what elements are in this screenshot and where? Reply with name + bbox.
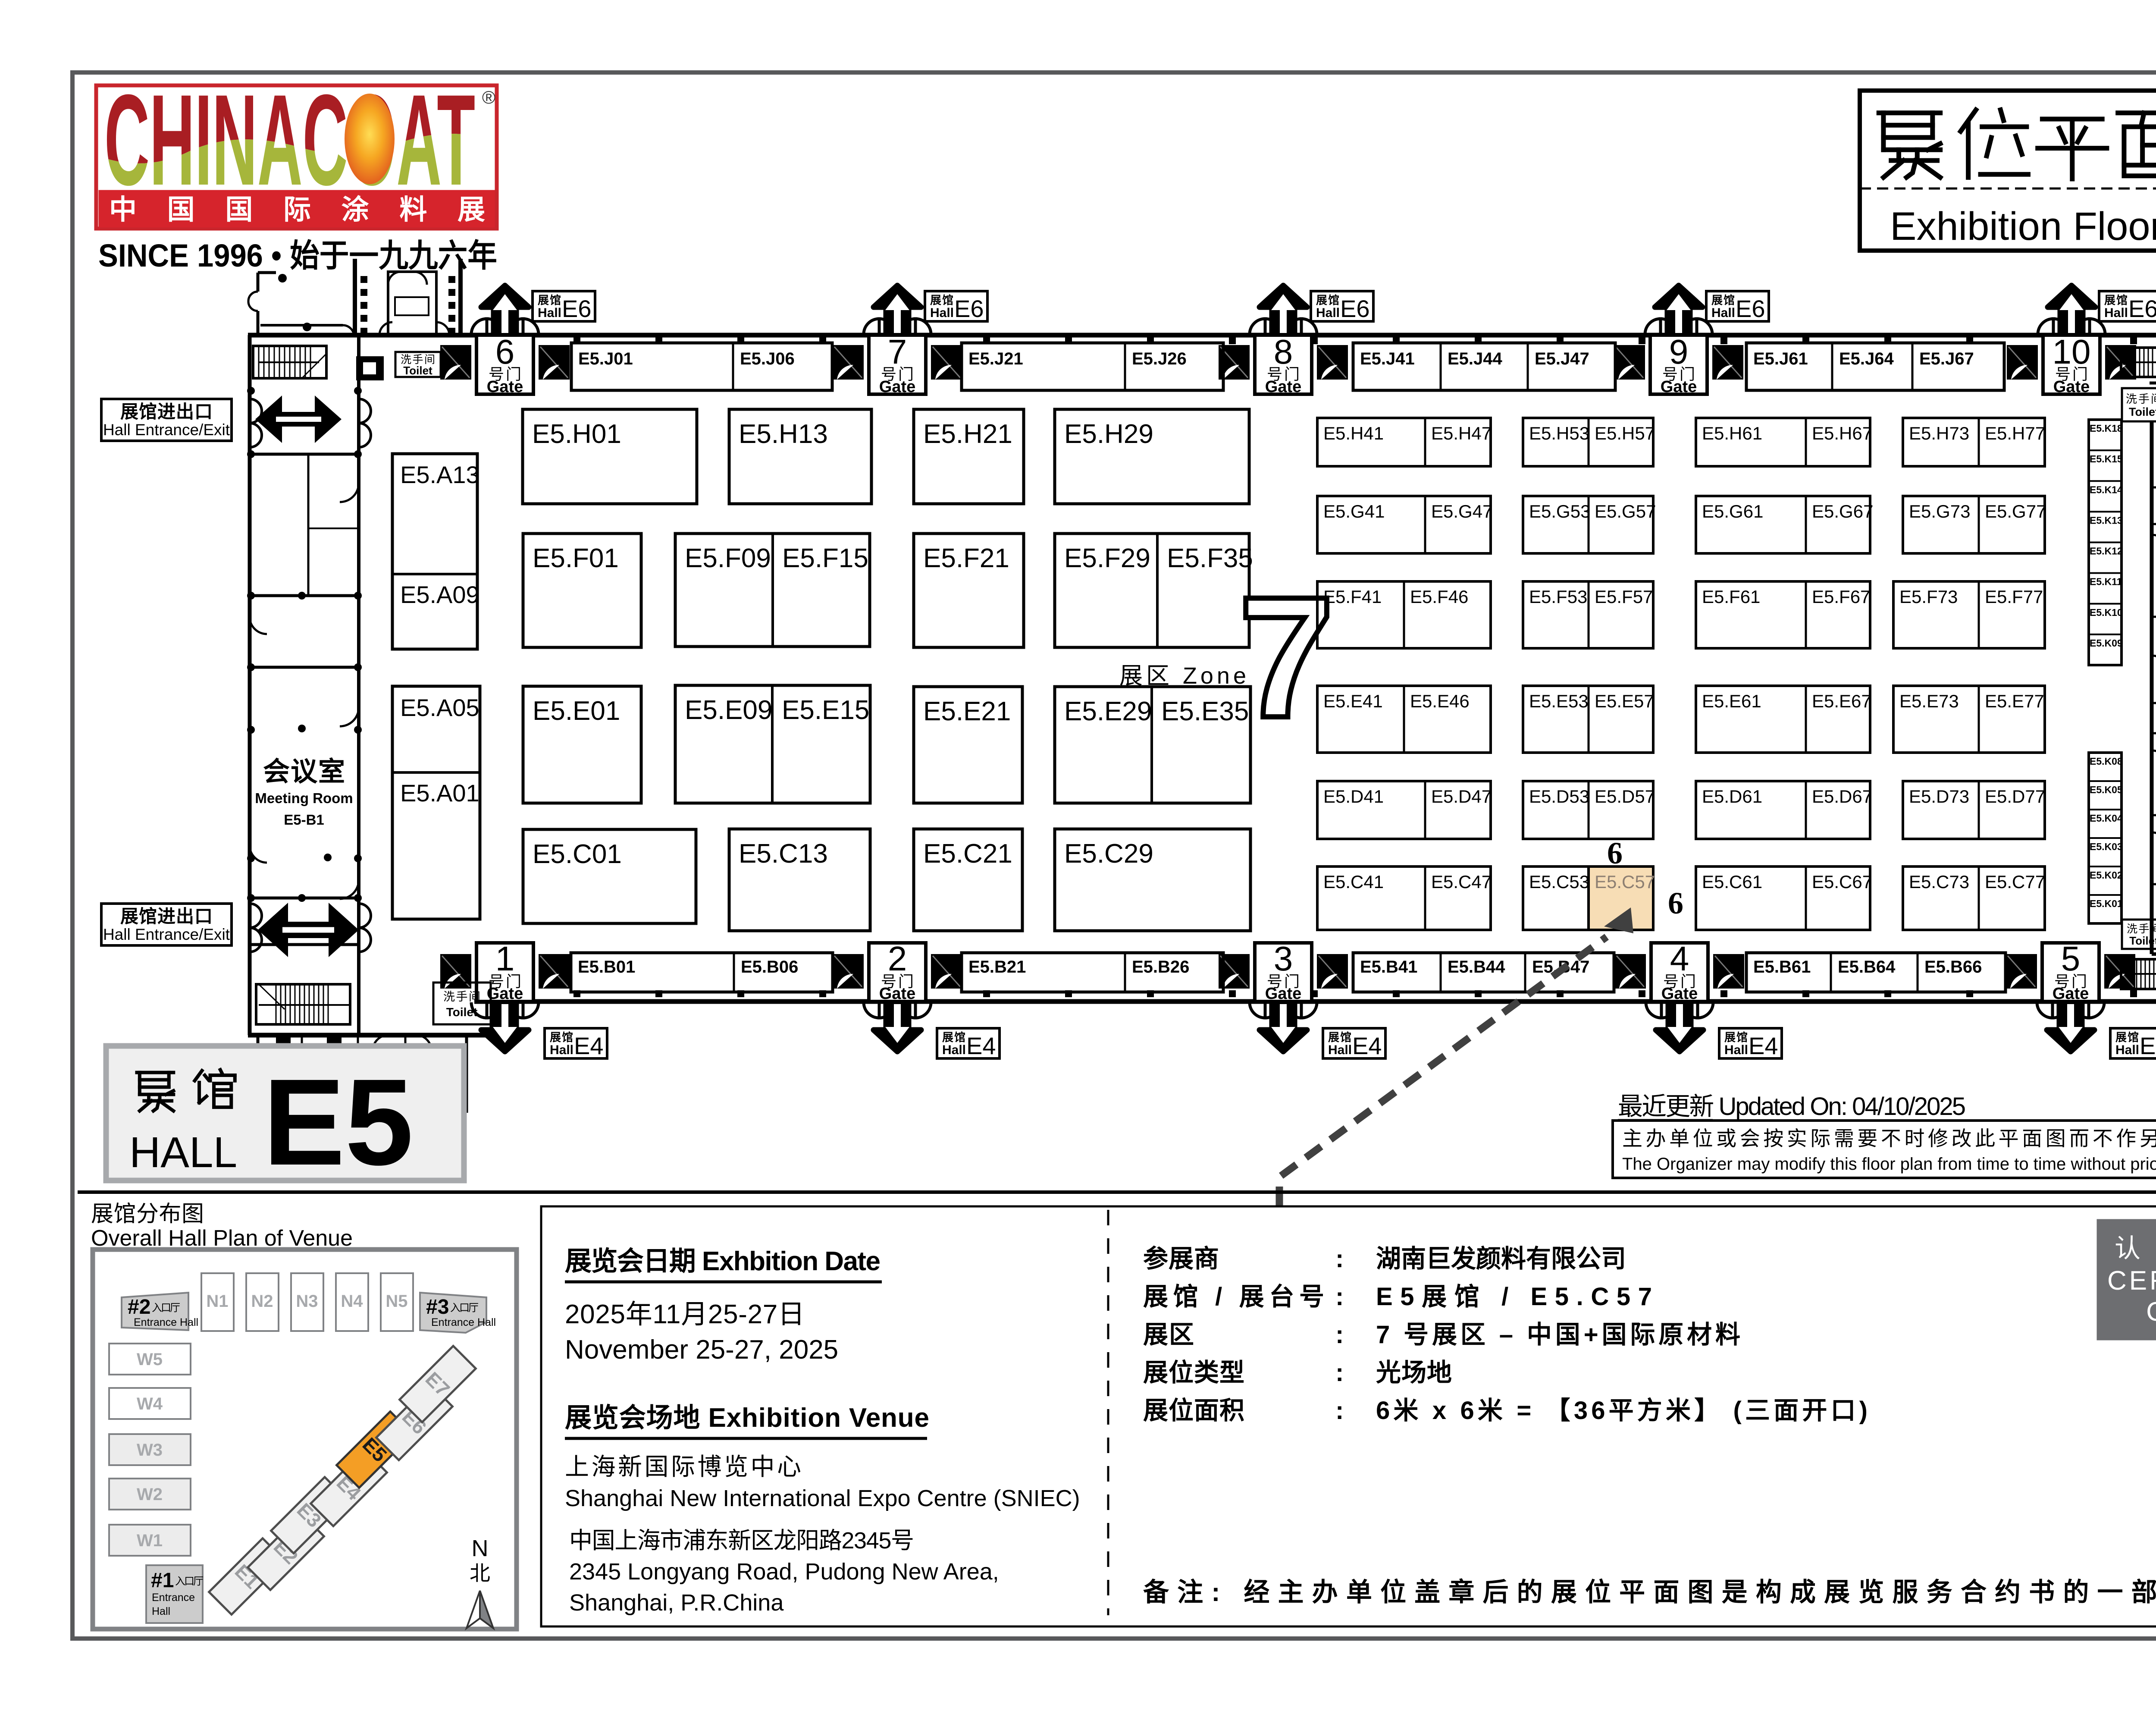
svg-text:W4: W4 xyxy=(137,1394,163,1413)
svg-text:E5.C61: E5.C61 xyxy=(1702,872,1762,892)
svg-text:E6: E6 xyxy=(954,295,984,322)
svg-text:E5.C01: E5.C01 xyxy=(533,839,622,869)
svg-text:2: 2 xyxy=(888,939,907,978)
svg-text:参展商: 参展商 xyxy=(1143,1245,1219,1273)
svg-text:E5.E73: E5.E73 xyxy=(1899,691,1959,711)
svg-text:主办单位或会按实际需要不时修改此平面图而不作另行通知。: 主办单位或会按实际需要不时修改此平面图而不作另行通知。 xyxy=(1622,1127,2156,1150)
svg-text:Entrance: Entrance xyxy=(152,1592,195,1604)
svg-text:E5.J47: E5.J47 xyxy=(1535,349,1589,368)
svg-text:Hall: Hall xyxy=(538,306,561,320)
svg-text:E5.B64: E5.B64 xyxy=(1838,958,1896,976)
svg-text:展区: 展区 xyxy=(1143,1321,1194,1349)
svg-text:N4: N4 xyxy=(341,1292,363,1311)
svg-text:E5.D73: E5.D73 xyxy=(1909,786,1969,807)
svg-text:E5.F61: E5.F61 xyxy=(1702,587,1760,607)
svg-text:E5.B06: E5.B06 xyxy=(741,958,798,976)
svg-text:E5.J41: E5.J41 xyxy=(1360,349,1415,368)
svg-text:E5.C13: E5.C13 xyxy=(739,839,828,869)
svg-text:E5.H57: E5.H57 xyxy=(1595,423,1655,443)
svg-text:E4: E4 xyxy=(1749,1032,1778,1059)
svg-text:N1: N1 xyxy=(206,1292,228,1311)
svg-text:E5.F67: E5.F67 xyxy=(1812,587,1870,607)
svg-text:展馆: 展馆 xyxy=(1724,1031,1748,1044)
svg-text:#2: #2 xyxy=(128,1296,150,1319)
svg-text:Shanghai New International Exp: Shanghai New International Expo Centre (… xyxy=(565,1485,1080,1511)
svg-text:Entrance Hall: Entrance Hall xyxy=(431,1316,496,1328)
svg-text:Gate: Gate xyxy=(1265,985,1301,1003)
svg-text::: : xyxy=(1335,1359,1344,1387)
svg-text:HALL: HALL xyxy=(129,1128,237,1177)
svg-text:E5.F57: E5.F57 xyxy=(1595,587,1653,607)
svg-text:E5.K09: E5.K09 xyxy=(2090,637,2123,649)
svg-text:#1: #1 xyxy=(151,1569,174,1592)
svg-text:E5.C29: E5.C29 xyxy=(1064,839,1153,869)
svg-text:E5.D53: E5.D53 xyxy=(1529,786,1589,807)
svg-text:November 25-27, 2025: November 25-27, 2025 xyxy=(565,1335,838,1365)
svg-text:中国上海市浦东新区龙阳路2345号: 中国上海市浦东新区龙阳路2345号 xyxy=(569,1528,914,1554)
svg-text:展馆: 展馆 xyxy=(2115,1031,2139,1044)
svg-text:展馆进出口: 展馆进出口 xyxy=(120,402,213,422)
svg-text:E5.B44: E5.B44 xyxy=(1448,958,1505,976)
svg-text:展馆: 展馆 xyxy=(550,1031,573,1044)
svg-text:北: 北 xyxy=(470,1562,490,1585)
svg-text:认 证 副 本: 认 证 副 本 xyxy=(2115,1234,2156,1263)
svg-text:E5.E57: E5.E57 xyxy=(1595,691,1654,711)
svg-text:E5.G47: E5.G47 xyxy=(1431,501,1492,521)
svg-text:E5.A13: E5.A13 xyxy=(400,461,479,488)
svg-text:7: 7 xyxy=(1238,561,1334,753)
svg-text:入口厅: 入口厅 xyxy=(152,1302,180,1314)
svg-text:E5.F73: E5.F73 xyxy=(1899,587,1958,607)
svg-text::: : xyxy=(1335,1321,1344,1349)
svg-text:E5.D61: E5.D61 xyxy=(1702,786,1762,807)
svg-text:E5.H01: E5.H01 xyxy=(532,419,621,449)
svg-text:E5.A05: E5.A05 xyxy=(400,694,479,721)
svg-text:E5.G53: E5.G53 xyxy=(1529,501,1590,521)
svg-text:E5.B66: E5.B66 xyxy=(1924,958,1982,976)
svg-text:E5.H47: E5.H47 xyxy=(1431,423,1492,443)
svg-text:E5.D47: E5.D47 xyxy=(1431,786,1492,807)
svg-text:Hall: Hall xyxy=(2115,1043,2139,1057)
svg-text:6米 x 6米 = 【36平方米】 (三面开口): 6米 x 6米 = 【36平方米】 (三面开口) xyxy=(1376,1397,1868,1425)
svg-text:展馆: 展馆 xyxy=(1316,294,1339,307)
svg-text:E5.H41: E5.H41 xyxy=(1323,423,1384,443)
svg-text:E5.K01: E5.K01 xyxy=(2090,898,2123,909)
svg-text:E5.C53: E5.C53 xyxy=(1529,872,1589,892)
svg-text:W1: W1 xyxy=(137,1531,163,1550)
svg-text:E5.J01: E5.J01 xyxy=(578,349,633,368)
svg-text:E5.K10: E5.K10 xyxy=(2090,607,2123,618)
svg-text:E5.F21: E5.F21 xyxy=(923,543,1009,573)
svg-text:E5.K13: E5.K13 xyxy=(2090,515,2123,526)
svg-text:3: 3 xyxy=(1274,939,1293,978)
svg-text:E5.J64: E5.J64 xyxy=(1839,349,1894,368)
svg-text:Hall: Hall xyxy=(1724,1043,1748,1057)
svg-text:Entrance Hall: Entrance Hall xyxy=(134,1316,198,1328)
svg-text:Gate: Gate xyxy=(487,378,523,396)
svg-text:展馆: 展馆 xyxy=(930,294,953,307)
svg-text:E5.D57: E5.D57 xyxy=(1595,786,1655,807)
svg-text:E5: E5 xyxy=(263,1054,414,1191)
svg-text:E5.G73: E5.G73 xyxy=(1909,501,1970,521)
svg-text:N3: N3 xyxy=(296,1292,318,1311)
svg-text:Hall: Hall xyxy=(1328,1043,1352,1057)
svg-text:E5.E67: E5.E67 xyxy=(1812,691,1871,711)
svg-text:E5.H53: E5.H53 xyxy=(1529,423,1589,443)
svg-text:E5-B1: E5-B1 xyxy=(284,812,324,828)
svg-text:E4: E4 xyxy=(1352,1032,1382,1059)
svg-text:Hall: Hall xyxy=(2104,306,2128,320)
svg-text:上海新国际博览中心: 上海新国际博览中心 xyxy=(565,1453,801,1480)
svg-text:E5.B26: E5.B26 xyxy=(1132,958,1189,976)
svg-text:E5.C47: E5.C47 xyxy=(1431,872,1492,892)
svg-text:Gate: Gate xyxy=(487,985,523,1003)
svg-text:E5.K04: E5.K04 xyxy=(2090,813,2123,824)
svg-text:E5.F53: E5.F53 xyxy=(1529,587,1587,607)
svg-text:Hall: Hall xyxy=(930,306,954,320)
svg-text:E5.F41: E5.F41 xyxy=(1323,587,1382,607)
svg-text:E5.E01: E5.E01 xyxy=(533,696,620,726)
svg-text:N: N xyxy=(472,1535,489,1561)
svg-text:Overall Hall Plan of Venue: Overall Hall Plan of Venue xyxy=(91,1226,353,1251)
svg-text:E5.J44: E5.J44 xyxy=(1448,349,1503,368)
svg-text:E5.H13: E5.H13 xyxy=(739,419,828,449)
svg-text:展馆分布图: 展馆分布图 xyxy=(91,1202,204,1227)
svg-text:E5.F29: E5.F29 xyxy=(1064,543,1150,573)
svg-text:Gate: Gate xyxy=(1661,378,1697,396)
svg-text:2345 Longyang Road, Pudong New: 2345 Longyang Road, Pudong New Area, xyxy=(569,1559,999,1585)
svg-text:Gate: Gate xyxy=(2053,985,2089,1003)
svg-text:E5.J21: E5.J21 xyxy=(968,349,1023,368)
svg-text:Toilet: Toilet xyxy=(446,1005,478,1019)
svg-text:E5.F15: E5.F15 xyxy=(782,543,868,573)
svg-text:E5.E09: E5.E09 xyxy=(685,695,772,725)
svg-text:1: 1 xyxy=(495,939,515,978)
svg-text:E5.C73: E5.C73 xyxy=(1909,872,1969,892)
svg-text:6: 6 xyxy=(1668,886,1683,920)
svg-text:E5.E21: E5.E21 xyxy=(923,697,1011,726)
svg-text:E5.K08: E5.K08 xyxy=(2090,756,2123,767)
svg-text:E5.C57: E5.C57 xyxy=(1595,872,1655,892)
svg-text:Hall: Hall xyxy=(550,1043,573,1057)
svg-text:Shanghai, P.R.China: Shanghai, P.R.China xyxy=(569,1590,784,1616)
svg-text:E5.C67: E5.C67 xyxy=(1812,872,1872,892)
svg-text:Hall: Hall xyxy=(942,1043,966,1057)
svg-text:E5.J61: E5.J61 xyxy=(1753,349,1808,368)
svg-text:E5.A09: E5.A09 xyxy=(400,581,479,608)
svg-text:E5.K15: E5.K15 xyxy=(2090,453,2123,465)
svg-text:Gate: Gate xyxy=(879,985,915,1003)
svg-text::: : xyxy=(1335,1283,1344,1311)
svg-text:E5.K11: E5.K11 xyxy=(2090,576,2122,587)
svg-text:Gate: Gate xyxy=(1265,378,1301,396)
svg-text:E5.A01: E5.A01 xyxy=(400,779,479,807)
svg-text:E5.B61: E5.B61 xyxy=(1753,958,1811,976)
svg-text:E4: E4 xyxy=(574,1032,604,1059)
svg-text:Hall Entrance/Exit: Hall Entrance/Exit xyxy=(103,926,230,943)
svg-text:E5.C21: E5.C21 xyxy=(923,839,1012,869)
svg-text:E5.G77: E5.G77 xyxy=(1985,501,2046,521)
svg-text:E5.E61: E5.E61 xyxy=(1702,691,1761,711)
svg-text:E5.H61: E5.H61 xyxy=(1702,423,1762,443)
svg-text:展馆: 展馆 xyxy=(538,294,561,307)
svg-text:Gate: Gate xyxy=(1661,985,1698,1003)
svg-text:N5: N5 xyxy=(385,1292,407,1311)
svg-text:E5.F09: E5.F09 xyxy=(685,543,771,573)
svg-text:W5: W5 xyxy=(137,1350,163,1369)
svg-text:E5.B01: E5.B01 xyxy=(578,958,635,976)
svg-text:E5.E29: E5.E29 xyxy=(1064,697,1152,726)
svg-text:E5.H29: E5.H29 xyxy=(1064,419,1153,449)
svg-text:The Organizer may modify this: The Organizer may modify this floor plan… xyxy=(1622,1155,2156,1174)
svg-text:E5.K18: E5.K18 xyxy=(2090,423,2123,434)
svg-text:Hall Entrance/Exit: Hall Entrance/Exit xyxy=(103,421,230,439)
svg-text:E5.E41: E5.E41 xyxy=(1323,691,1383,711)
svg-text:展馆: 展馆 xyxy=(1711,294,1735,307)
svg-text:E5.G57: E5.G57 xyxy=(1595,501,1656,521)
svg-text:Gate: Gate xyxy=(2053,378,2090,396)
svg-text:E5.H73: E5.H73 xyxy=(1909,423,1969,443)
svg-text:E5.E35: E5.E35 xyxy=(1161,697,1249,726)
svg-text:E5.E15: E5.E15 xyxy=(782,695,869,725)
svg-text:E6: E6 xyxy=(2128,295,2156,322)
svg-text:展览会日期 Exhbition Date: 展览会日期 Exhbition Date xyxy=(565,1246,881,1276)
svg-text:入口厅: 入口厅 xyxy=(450,1302,479,1314)
svg-text:E4: E4 xyxy=(2140,1032,2156,1059)
svg-text:SINCE 1996 • 始于一九九六年: SINCE 1996 • 始于一九九六年 xyxy=(98,238,497,273)
svg-text:E5.F77: E5.F77 xyxy=(1985,587,2043,607)
svg-text:®: ® xyxy=(482,87,495,107)
svg-text:Hall: Hall xyxy=(1316,306,1340,320)
svg-text:#3: #3 xyxy=(426,1296,449,1319)
svg-text:Gate: Gate xyxy=(879,378,915,396)
svg-text:E5.G61: E5.G61 xyxy=(1702,501,1763,521)
svg-text:洗手间: 洗手间 xyxy=(2126,392,2156,405)
svg-text:洗手间: 洗手间 xyxy=(443,990,480,1003)
svg-text:展馆进出口: 展馆进出口 xyxy=(120,906,213,926)
svg-text:展览会场地 Exhibition Venue: 展览会场地 Exhibition Venue xyxy=(565,1403,929,1433)
svg-text:Meeting Room: Meeting Room xyxy=(255,790,353,806)
svg-text:Exhibition Floor Plan: Exhibition Floor Plan xyxy=(1890,204,2156,248)
svg-text:E5.C41: E5.C41 xyxy=(1323,872,1384,892)
svg-text:CERTIFIED: CERTIFIED xyxy=(2107,1266,2156,1296)
svg-text:展馆: 展馆 xyxy=(1328,1031,1351,1044)
svg-text:E5.H67: E5.H67 xyxy=(1812,423,1872,443)
svg-text:Hall: Hall xyxy=(152,1605,170,1617)
svg-text:COPY: COPY xyxy=(2146,1297,2156,1327)
svg-text::: : xyxy=(1335,1245,1344,1273)
svg-text:E5.K02: E5.K02 xyxy=(2090,870,2123,881)
svg-text::: : xyxy=(1335,1397,1344,1425)
svg-text:E6: E6 xyxy=(1340,295,1370,322)
svg-text:E4: E4 xyxy=(966,1032,996,1059)
svg-text:E5.D67: E5.D67 xyxy=(1812,786,1872,807)
svg-text:E5.F01: E5.F01 xyxy=(533,543,619,573)
svg-text:W2: W2 xyxy=(137,1485,163,1504)
svg-text:Toilet: Toilet xyxy=(403,364,432,377)
svg-text:5: 5 xyxy=(2061,939,2081,978)
svg-text:6: 6 xyxy=(1607,836,1623,870)
svg-text:入口厅: 入口厅 xyxy=(175,1576,204,1587)
svg-text:E6: E6 xyxy=(562,295,592,322)
svg-text:展位类型: 展位类型 xyxy=(1143,1359,1244,1387)
svg-text:E5.K03: E5.K03 xyxy=(2090,841,2123,852)
svg-text:最近更新 Updated On: 04/10/2025: 最近更新 Updated On: 04/10/2025 xyxy=(1618,1093,1966,1121)
svg-text:会议室: 会议室 xyxy=(263,757,345,787)
svg-text:E5.J06: E5.J06 xyxy=(740,349,795,368)
svg-text:展馆: 展馆 xyxy=(2104,294,2128,307)
svg-text:E5.D77: E5.D77 xyxy=(1985,786,2045,807)
svg-text:湖南巨发颜料有限公司: 湖南巨发颜料有限公司 xyxy=(1376,1245,1626,1273)
svg-text:E5.C77: E5.C77 xyxy=(1985,872,2045,892)
svg-text:展馆: 展馆 xyxy=(942,1031,965,1044)
svg-text:E5.K12: E5.K12 xyxy=(2090,546,2123,557)
svg-text:E5.H77: E5.H77 xyxy=(1985,423,2045,443)
svg-text:E5.E53: E5.E53 xyxy=(1529,691,1589,711)
svg-text:展位面积: 展位面积 xyxy=(1143,1397,1244,1425)
svg-text:E5.F46: E5.F46 xyxy=(1410,587,1468,607)
svg-text:E6: E6 xyxy=(1736,295,1765,322)
svg-text:E5.E46: E5.E46 xyxy=(1410,691,1470,711)
svg-text:Toilet: Toilet xyxy=(2129,934,2156,947)
svg-text:E5.B41: E5.B41 xyxy=(1360,958,1417,976)
svg-text:展区 Zone: 展区 Zone xyxy=(1119,663,1246,689)
svg-text:E5.J67: E5.J67 xyxy=(1919,349,1974,368)
svg-text:洗手间: 洗手间 xyxy=(2127,923,2156,935)
svg-text:E5.G41: E5.G41 xyxy=(1323,501,1385,521)
svg-text:E5.K05: E5.K05 xyxy=(2090,784,2123,795)
svg-text:2025年11月25-27日: 2025年11月25-27日 xyxy=(565,1300,805,1329)
svg-text:E5.B21: E5.B21 xyxy=(968,958,1026,976)
svg-text:N2: N2 xyxy=(251,1292,273,1311)
svg-text:E5.J26: E5.J26 xyxy=(1132,349,1187,368)
svg-text:E5.H21: E5.H21 xyxy=(923,419,1012,449)
svg-text:Toilet: Toilet xyxy=(2129,405,2156,418)
svg-text:E5.G67: E5.G67 xyxy=(1812,501,1873,521)
svg-text:W3: W3 xyxy=(137,1441,163,1460)
svg-text:E5.E77: E5.E77 xyxy=(1985,691,2044,711)
svg-text:光场地: 光场地 xyxy=(1376,1359,1452,1387)
svg-text:Hall: Hall xyxy=(1711,306,1735,320)
svg-text:E5.D41: E5.D41 xyxy=(1323,786,1384,807)
svg-text:4: 4 xyxy=(1670,939,1689,978)
svg-text:E5.K14: E5.K14 xyxy=(2090,484,2123,495)
